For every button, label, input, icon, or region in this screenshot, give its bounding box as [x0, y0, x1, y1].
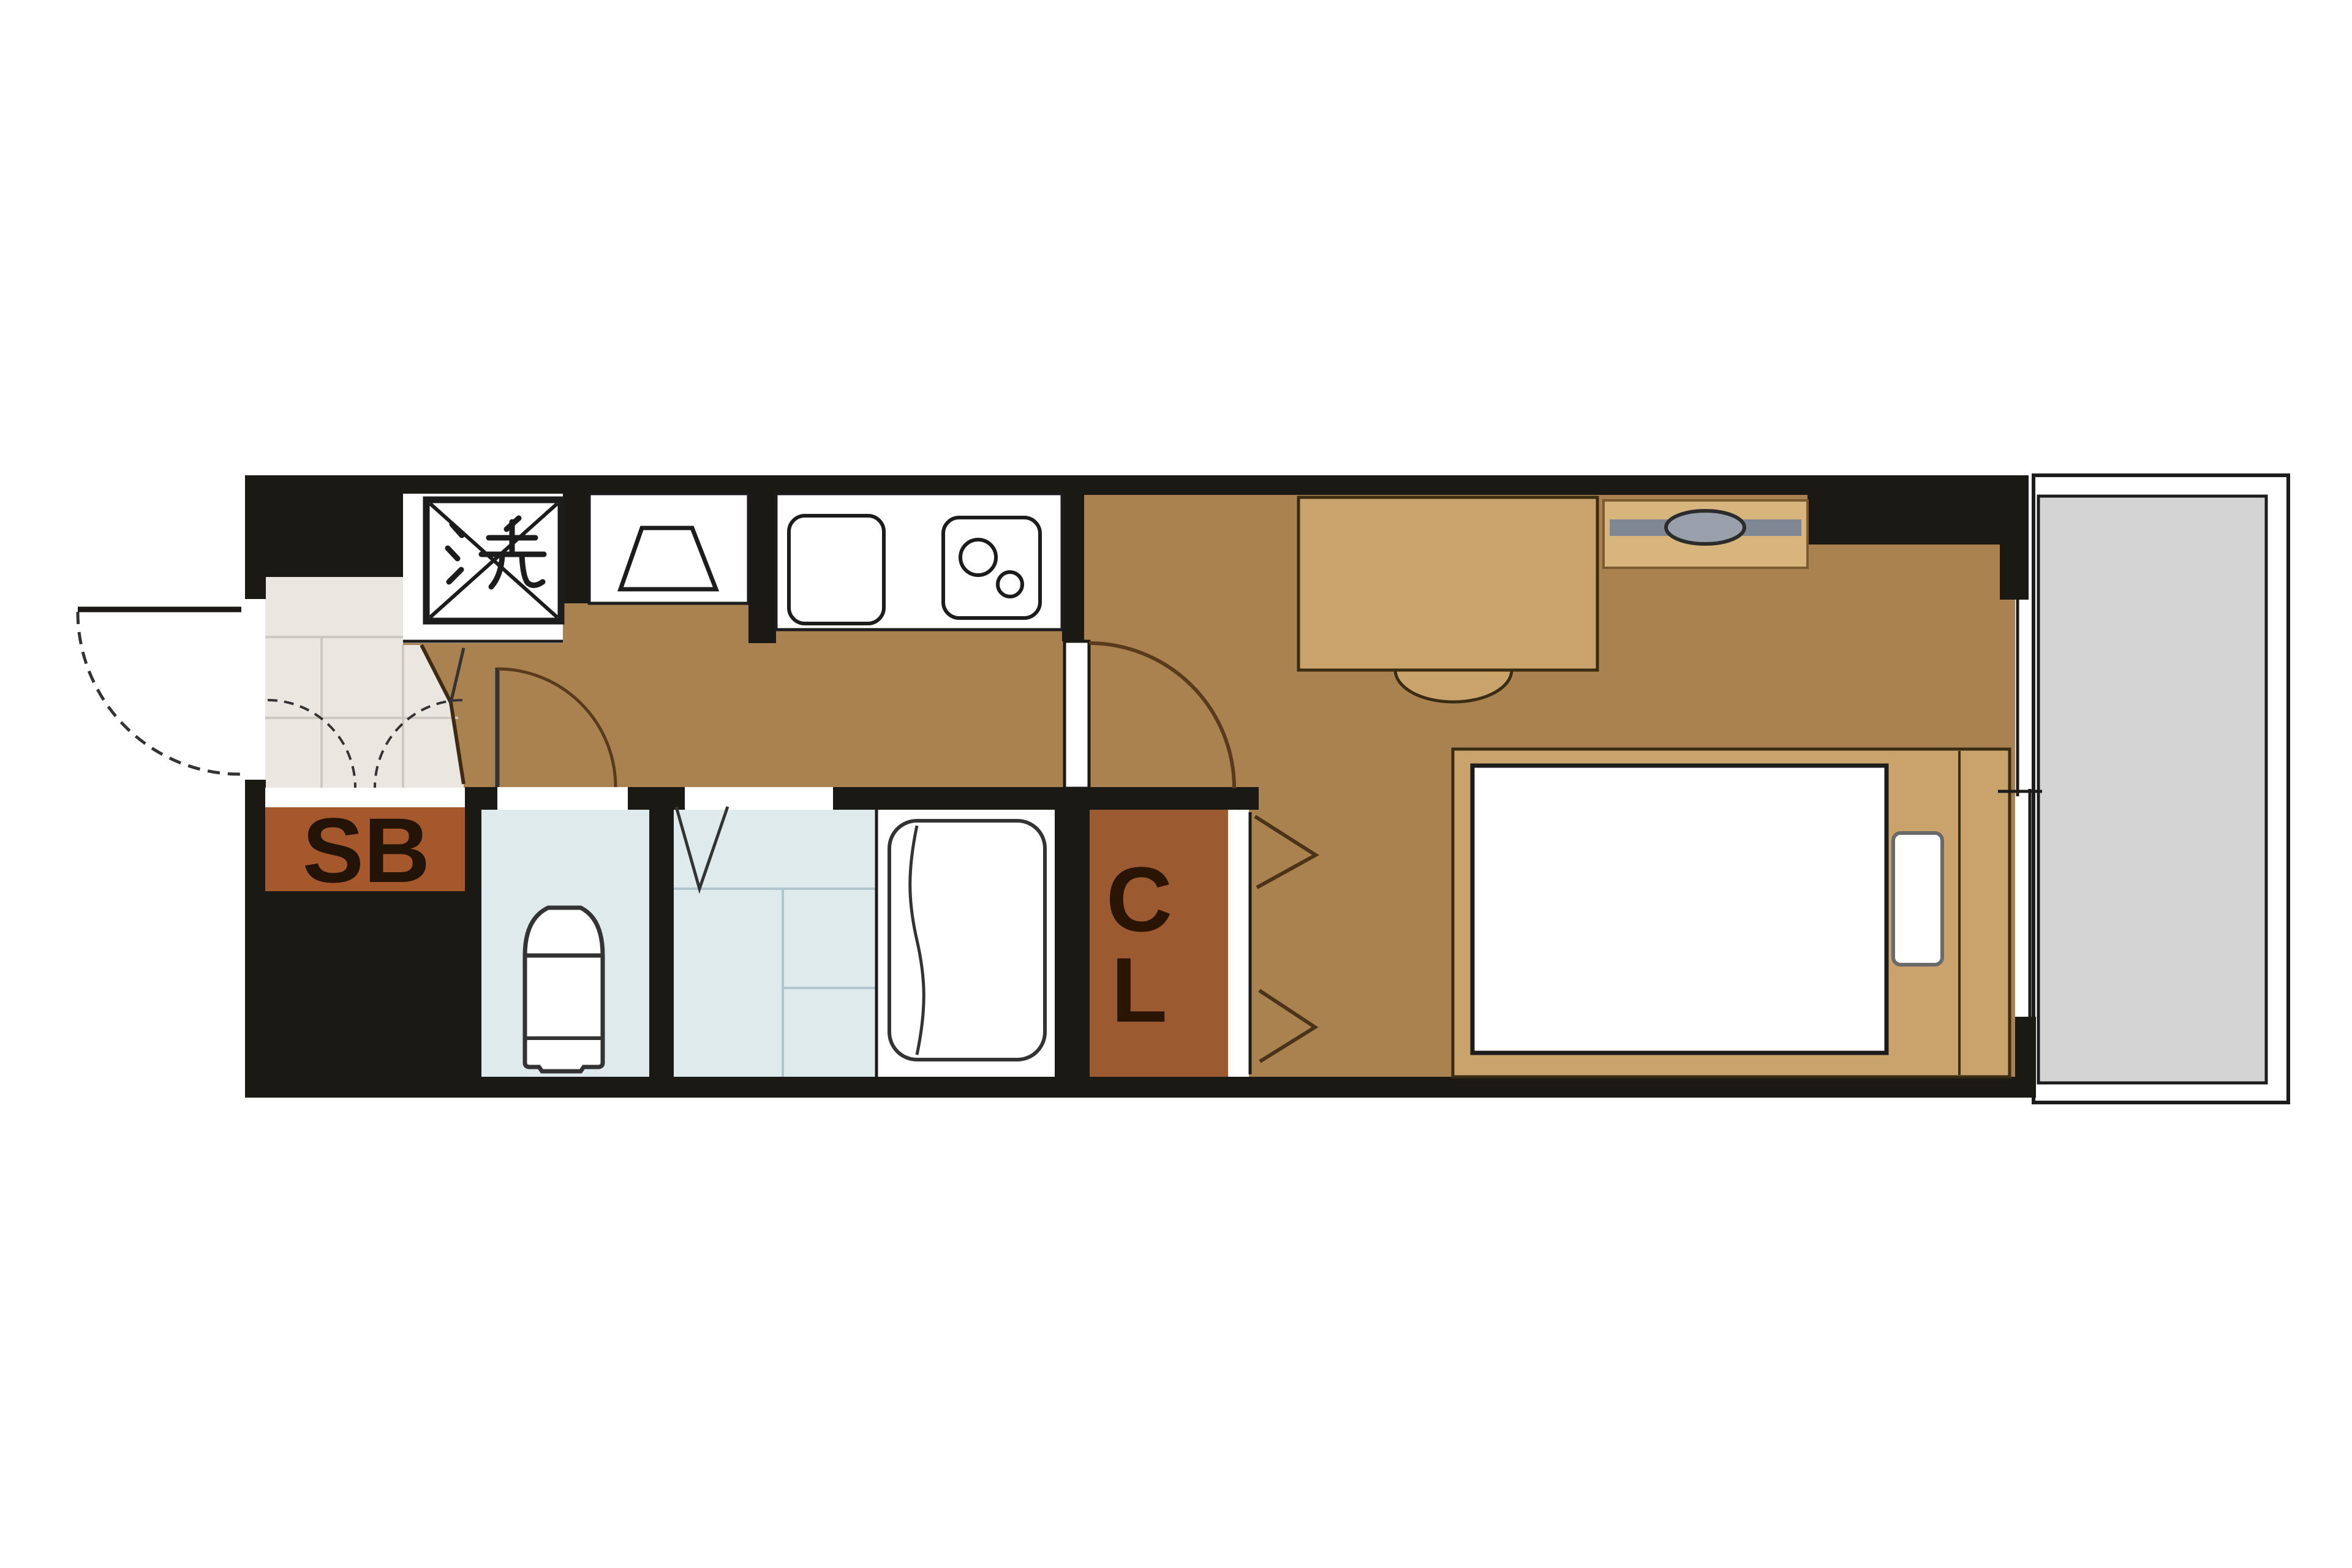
closet-door-track	[1228, 810, 1249, 1077]
wall-bottom	[245, 1077, 2046, 1098]
wall-window-top-column	[2000, 545, 2029, 600]
entrance-door-arc	[78, 612, 240, 774]
bath-door-opening	[685, 787, 833, 810]
wall-range-counter-divider	[748, 494, 776, 643]
kitchen-sink	[789, 516, 884, 624]
wall-top	[245, 475, 1807, 495]
balcony	[2034, 475, 2288, 1102]
closet-label-l: L	[1111, 938, 1167, 1041]
bathroom-floor	[674, 810, 876, 1077]
bed-mattress	[1472, 766, 1887, 1053]
bathtub	[889, 821, 1045, 1060]
shoe-box-label: SB	[303, 799, 430, 902]
floor-plan-page: SB C L	[0, 0, 2352, 1568]
range-box	[589, 494, 748, 603]
tv-stand-oval	[1666, 511, 1744, 544]
toilet-body	[525, 908, 603, 1071]
wall-left-upper	[245, 475, 266, 599]
desk	[1298, 497, 1597, 670]
stove-burner-large	[960, 540, 996, 575]
wall-left-of-washer	[265, 494, 403, 577]
main-room-door-leaf	[1065, 641, 1089, 788]
closet-label-c: C	[1106, 848, 1172, 951]
toilet-door-opening	[497, 787, 628, 810]
balcony-deck	[2038, 496, 2266, 1083]
wall-kitchen-mainroom	[1062, 494, 1084, 641]
floor-plan: SB C L	[0, 0, 2352, 1568]
toilet	[525, 908, 603, 1071]
pillow	[1893, 833, 1942, 965]
stove-burner-small	[998, 572, 1022, 597]
wall-bath-closet	[1055, 787, 1090, 1077]
kitchen-counter	[776, 494, 1062, 630]
range-space	[589, 494, 748, 603]
wall-toilet-bath	[649, 787, 674, 1077]
wall-washer-range-divider	[563, 494, 589, 603]
wall-top-right-block	[1807, 475, 2029, 545]
washing-machine-space	[403, 494, 563, 643]
window-bottom-block	[2015, 1017, 2036, 1098]
